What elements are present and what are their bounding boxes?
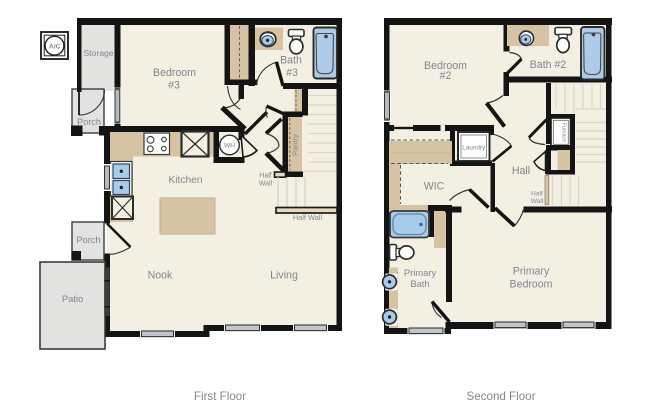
svg-text:Bedroom: Bedroom xyxy=(153,67,196,79)
svg-text:Hall: Hall xyxy=(512,165,530,177)
svg-text:Living: Living xyxy=(270,270,298,282)
svg-text:Patio: Patio xyxy=(62,293,83,304)
svg-text:Bath: Bath xyxy=(280,55,302,67)
svg-text:Primary: Primary xyxy=(404,267,437,278)
svg-text:Porch: Porch xyxy=(76,235,100,245)
svg-text:Porch: Porch xyxy=(77,117,101,127)
svg-text:#3: #3 xyxy=(286,67,298,79)
svg-text:Bath: Bath xyxy=(410,278,429,289)
svg-text:Bath #2: Bath #2 xyxy=(530,59,567,71)
svg-text:Nook: Nook xyxy=(148,270,173,282)
svg-text:WIC: WIC xyxy=(424,181,445,193)
svg-text:#3: #3 xyxy=(168,80,180,92)
svg-text:Wall: Wall xyxy=(531,198,544,205)
svg-text:Half: Half xyxy=(531,191,543,198)
svg-text:WH: WH xyxy=(224,142,235,149)
svg-text:Laundry: Laundry xyxy=(462,145,486,152)
svg-text:Pantry: Pantry xyxy=(291,134,300,156)
svg-text:Bedroom: Bedroom xyxy=(510,279,553,291)
svg-text:A/C: A/C xyxy=(49,43,61,50)
svg-text:First Floor: First Floor xyxy=(194,390,246,403)
svg-text:Half Wall: Half Wall xyxy=(293,213,323,222)
svg-text:Storage: Storage xyxy=(83,48,113,58)
svg-text:Wall: Wall xyxy=(259,181,273,188)
svg-text:Furnace: Furnace xyxy=(561,123,567,142)
svg-text:Kitchen: Kitchen xyxy=(169,175,203,186)
svg-text:Half: Half xyxy=(259,173,272,180)
svg-text:Primary: Primary xyxy=(513,266,550,278)
svg-text:#2: #2 xyxy=(440,70,452,82)
svg-text:Second Floor: Second Floor xyxy=(467,390,536,403)
